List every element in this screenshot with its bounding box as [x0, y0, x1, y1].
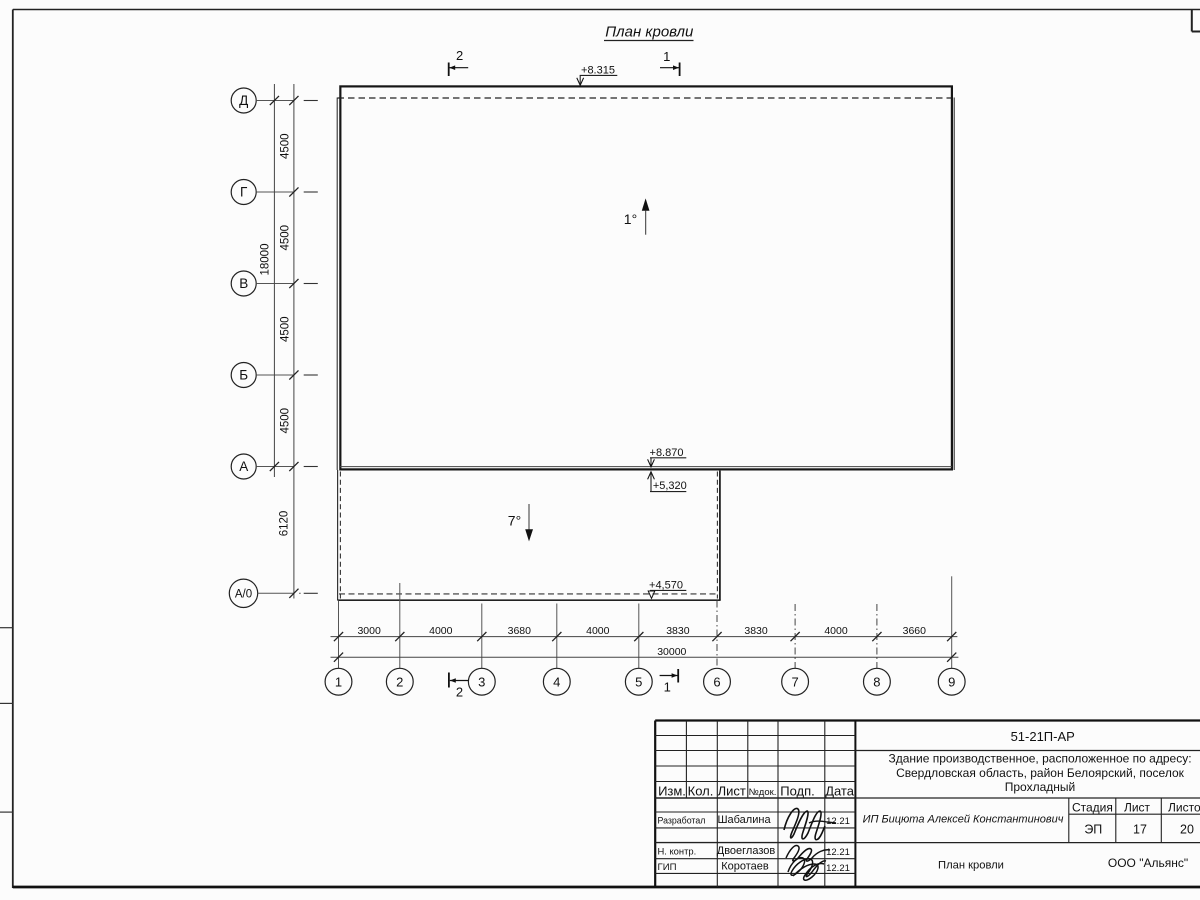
svg-text:4000: 4000 — [429, 625, 453, 637]
svg-text:12.21: 12.21 — [826, 863, 850, 874]
svg-text:4500: 4500 — [279, 133, 291, 159]
svg-text:17: 17 — [1133, 823, 1147, 837]
svg-text:12.21: 12.21 — [826, 816, 850, 827]
svg-text:В: В — [239, 276, 248, 291]
svg-text:Здание производственное, распо: Здание производственное, расположенное п… — [888, 752, 1191, 766]
svg-text:Дата: Дата — [825, 784, 855, 799]
svg-text:3680: 3680 — [508, 625, 532, 637]
svg-text:Н. контр.: Н. контр. — [658, 846, 697, 857]
svg-text:2: 2 — [456, 685, 463, 700]
svg-text:Г: Г — [240, 185, 248, 200]
svg-text:2: 2 — [396, 674, 403, 689]
svg-text:+8.870: +8.870 — [650, 447, 684, 459]
svg-text:Лист: Лист — [1124, 801, 1151, 815]
svg-text:12.21: 12.21 — [826, 847, 850, 858]
svg-text:План кровли: План кровли — [938, 859, 1004, 871]
svg-text:5: 5 — [635, 674, 642, 689]
svg-text:4: 4 — [553, 674, 560, 689]
svg-text:6: 6 — [713, 674, 720, 689]
svg-text:Б: Б — [239, 368, 248, 383]
svg-text:2: 2 — [456, 48, 463, 63]
svg-text:8: 8 — [873, 674, 880, 689]
svg-text:+8.315: +8.315 — [581, 64, 615, 76]
svg-text:3000: 3000 — [357, 625, 381, 637]
svg-text:1: 1 — [663, 49, 670, 64]
svg-text:3830: 3830 — [744, 625, 768, 637]
svg-text:Разработал: Разработал — [658, 815, 706, 825]
svg-text:Прохладный: Прохладный — [1005, 780, 1075, 794]
svg-text:А: А — [239, 459, 248, 474]
svg-text:+5,320: +5,320 — [653, 480, 687, 492]
svg-text:План кровли: План кровли — [605, 24, 694, 41]
svg-text:18000: 18000 — [259, 244, 271, 276]
svg-text:ООО "Альянс": ООО "Альянс" — [1108, 856, 1188, 870]
svg-text:Свердловская область, район Бе: Свердловская область, район Белоярский, … — [896, 766, 1185, 780]
svg-text:51-21П-АР: 51-21П-АР — [1011, 729, 1075, 744]
svg-text:1°: 1° — [624, 211, 637, 227]
svg-text:Подп.: Подп. — [780, 784, 815, 799]
svg-text:Стадия: Стадия — [1072, 801, 1113, 815]
svg-text:ЭП: ЭП — [1084, 823, 1102, 837]
svg-text:1: 1 — [664, 680, 671, 695]
svg-text:4500: 4500 — [279, 225, 291, 251]
svg-text:А/0: А/0 — [235, 589, 252, 601]
svg-text:6120: 6120 — [279, 511, 291, 537]
svg-text:Лист: Лист — [718, 784, 746, 799]
svg-text:Шабалина: Шабалина — [717, 814, 771, 826]
svg-text:Д: Д — [239, 93, 248, 108]
svg-text:3830: 3830 — [666, 625, 690, 637]
svg-text:№док.: №док. — [749, 787, 777, 798]
svg-text:ИП Бицюта Алексей Константинов: ИП Бицюта Алексей Константинович — [863, 813, 1064, 825]
svg-text:4500: 4500 — [279, 316, 291, 342]
svg-text:+4,570: +4,570 — [649, 580, 683, 592]
svg-text:3: 3 — [478, 674, 485, 689]
svg-text:Коротаев: Коротаев — [721, 861, 769, 873]
svg-text:3660: 3660 — [903, 625, 927, 637]
svg-text:Изм.: Изм. — [658, 784, 686, 799]
svg-text:1: 1 — [335, 674, 342, 689]
svg-text:Листов: Листов — [1168, 801, 1200, 815]
svg-text:4500: 4500 — [279, 408, 291, 434]
svg-text:7: 7 — [791, 674, 798, 689]
svg-text:20: 20 — [1180, 823, 1194, 837]
svg-text:ГИП: ГИП — [658, 862, 677, 873]
svg-text:7°: 7° — [508, 513, 521, 529]
svg-text:30000: 30000 — [657, 646, 686, 658]
svg-text:Кол.: Кол. — [688, 784, 714, 799]
svg-text:9: 9 — [948, 674, 955, 689]
svg-text:4000: 4000 — [824, 625, 848, 637]
svg-text:Двоеглазов: Двоеглазов — [717, 845, 776, 857]
svg-text:4000: 4000 — [586, 625, 610, 637]
